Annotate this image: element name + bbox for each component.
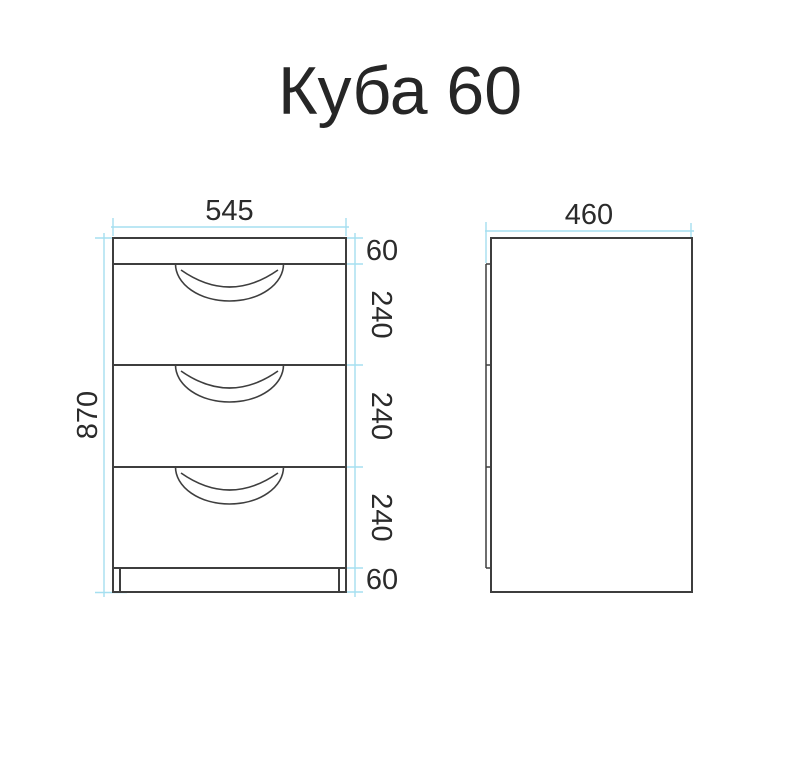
section-label-plinth: 60 bbox=[366, 564, 398, 596]
front-carcass-outline bbox=[113, 238, 346, 592]
section-label-drawer-2: 240 bbox=[365, 392, 397, 440]
drawer3-handle-lip bbox=[181, 473, 278, 490]
drawer3-handle-bowl bbox=[176, 467, 284, 504]
section-label-drawer-1: 240 bbox=[365, 290, 397, 338]
drawer2-handle-bowl bbox=[176, 365, 284, 402]
side-view bbox=[486, 238, 692, 592]
drawer1-handle-bowl bbox=[176, 264, 284, 301]
cabinet-geometry bbox=[113, 238, 692, 592]
side-carcass-outline bbox=[491, 238, 692, 592]
front-view bbox=[113, 238, 346, 592]
section-label-top-panel: 60 bbox=[366, 235, 398, 267]
drawer2-handle-lip bbox=[181, 371, 278, 388]
technical-drawing: 545 870 60 240 240 240 60 460 bbox=[0, 0, 800, 758]
section-label-drawer-3: 240 bbox=[365, 493, 397, 541]
side-depth-label: 460 bbox=[565, 199, 613, 231]
drawer1-handle-lip bbox=[181, 270, 278, 287]
drawer-handles bbox=[176, 264, 284, 504]
front-width-label: 545 bbox=[205, 195, 253, 227]
front-height-label: 870 bbox=[72, 391, 104, 439]
dimension-labels: 545 870 60 240 240 240 60 460 bbox=[72, 195, 613, 596]
